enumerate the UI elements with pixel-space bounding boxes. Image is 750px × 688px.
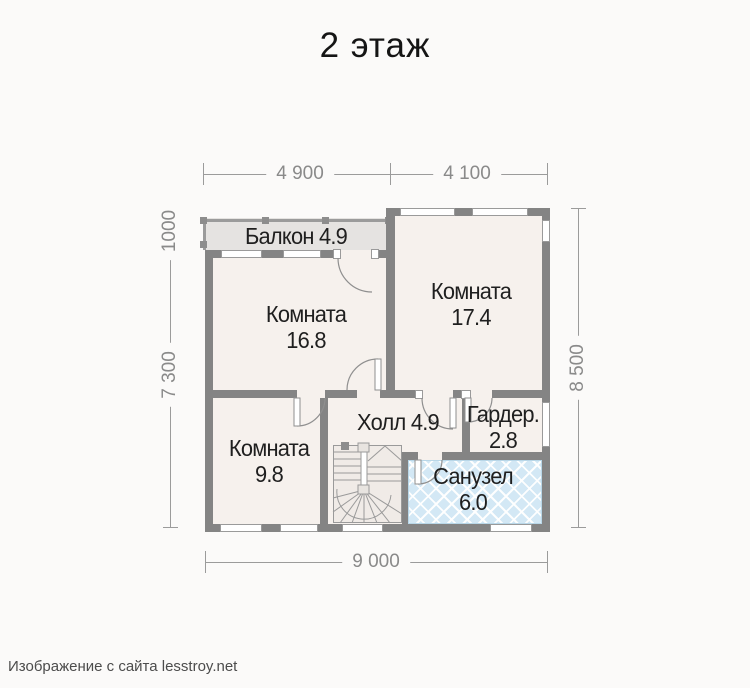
plan-details-layer bbox=[0, 0, 750, 688]
door-arc-balcony bbox=[338, 258, 372, 292]
floor-plan: Балкон 4.9 Комната 16.8 Комната 17.4 Ком… bbox=[0, 0, 750, 688]
bathroom-name: Санузел bbox=[433, 463, 513, 489]
door-leaf bbox=[415, 460, 421, 484]
room-174-name: Комната bbox=[431, 278, 511, 304]
hall-label: Холл 4.9 bbox=[357, 409, 439, 435]
room-98-name: Комната bbox=[229, 435, 309, 461]
door-leaf bbox=[450, 398, 456, 428]
room-174-area: 17.4 bbox=[431, 304, 511, 330]
wardrobe-name: Гардер. bbox=[467, 401, 539, 427]
room-168-name: Комната bbox=[266, 301, 346, 327]
room-168-area: 16.8 bbox=[266, 327, 346, 353]
room-98-label: Комната 9.8 bbox=[229, 435, 309, 487]
door-leaf bbox=[375, 359, 381, 390]
bathroom-area: 6.0 bbox=[433, 489, 513, 515]
room-168-label: Комната 16.8 bbox=[266, 301, 346, 353]
balcony-label: Балкон 4.9 bbox=[245, 223, 347, 249]
room-98-area: 9.8 bbox=[229, 461, 309, 487]
bathroom-label: Санузел 6.0 bbox=[433, 463, 513, 515]
door-leaf bbox=[294, 398, 300, 426]
wardrobe-area: 2.8 bbox=[467, 427, 539, 453]
staircase bbox=[333, 442, 402, 523]
door-arc-room168 bbox=[347, 359, 378, 390]
room-174-label: Комната 17.4 bbox=[431, 278, 511, 330]
door-arc-room98 bbox=[297, 398, 325, 426]
wardrobe-label: Гардер. 2.8 bbox=[467, 401, 539, 453]
